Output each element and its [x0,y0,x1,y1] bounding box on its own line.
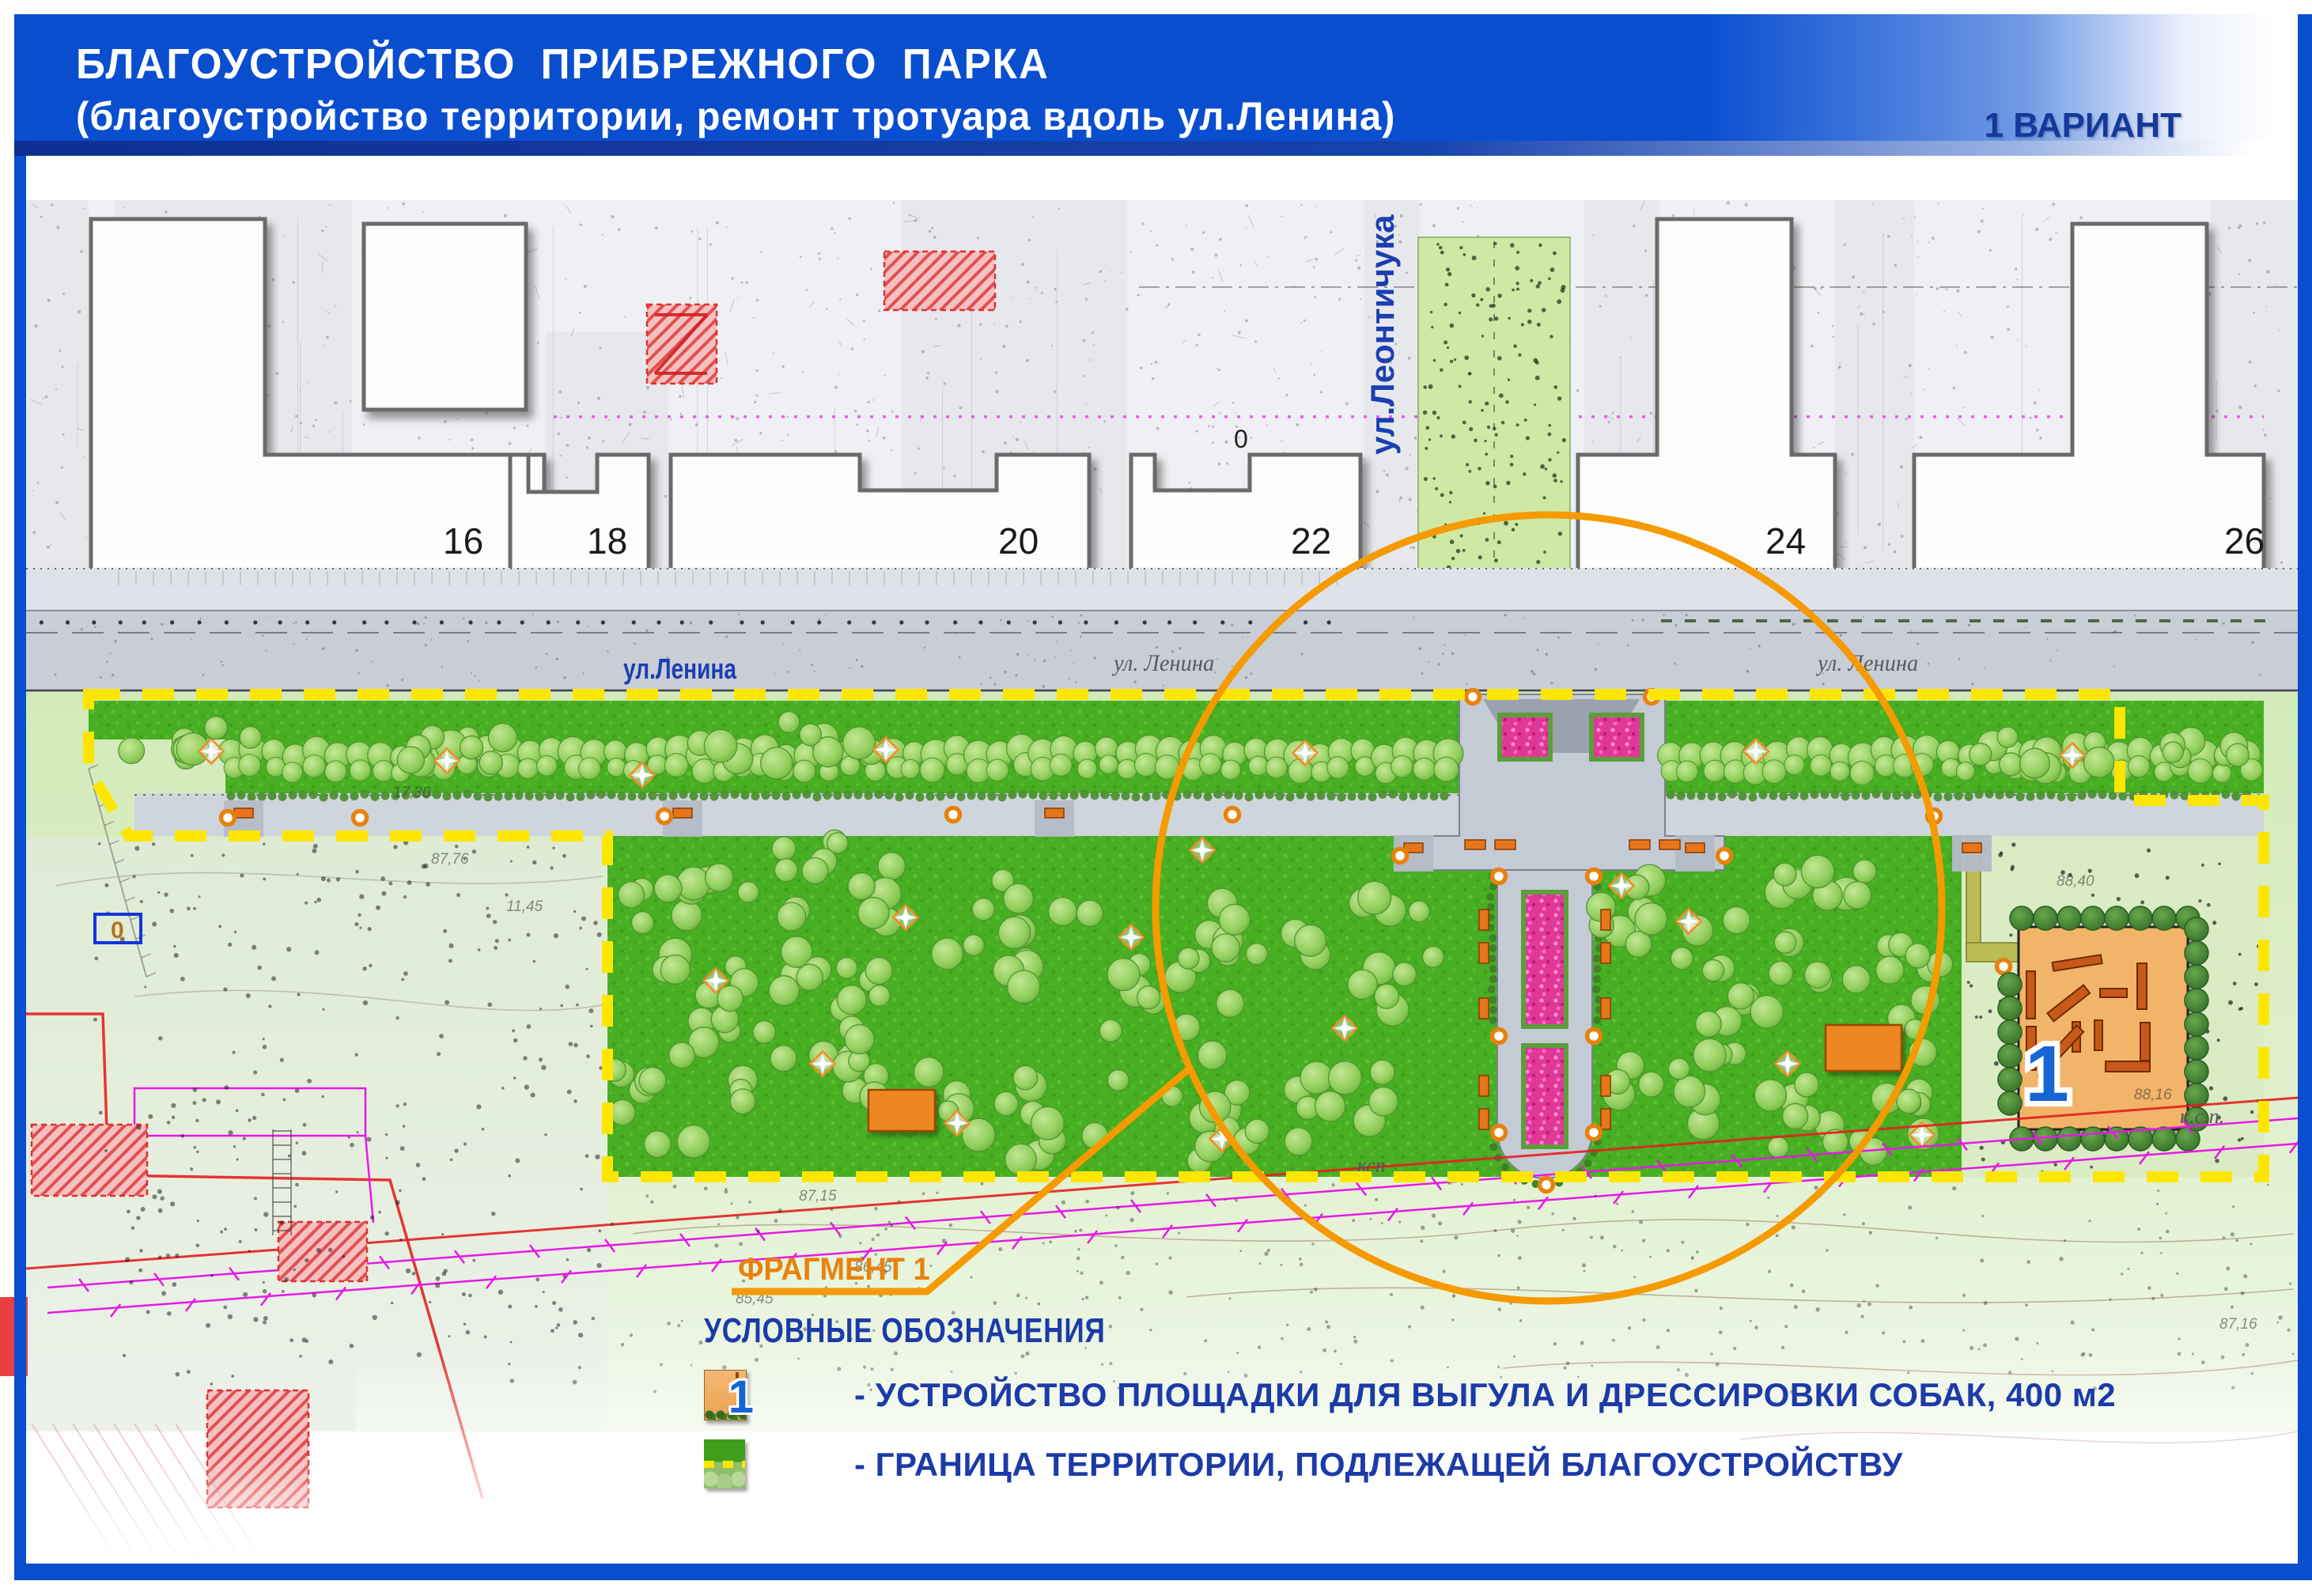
street-label-lenina-topo: ул. Ленина [1111,650,1214,676]
page-title: БЛАГОУСТРОЙСТВО ПРИБРЕЖНОГО ПАРКА [76,40,1050,89]
legend-item-dog-park: 1 - УСТРОЙСТВО ПЛОЩАДКИ ДЛЯ ВЫГУЛА И ДРЕ… [704,1370,1205,1420]
street-label-lenina: ул.Ленина [623,653,737,685]
frame-bottom-stripe [14,1564,2312,1580]
dog-park: 1 [1998,906,2208,1151]
frame-left-stripe [14,14,26,1580]
header: БЛАГОУСТРОЙСТВО ПРИБРЕЖНОГО ПАРКА (благо… [14,14,2298,141]
dog-park-icon-number: 1 [728,1371,754,1424]
topo-label-ksp: к.с.п. [2180,1105,2224,1128]
building-number: 24 [1765,520,1806,562]
frame-right-stripe [2298,14,2312,1580]
building-annex [364,224,526,410]
elevation-label: 87,15 [799,1188,837,1205]
legend-heading: УСЛОВНЫЕ ОБОЗНАЧЕНИЯ [704,1311,1106,1351]
legend-item-label: - УСТРОЙСТВО ПЛОЩАДКИ ДЛЯ ВЫГУЛА И ДРЕСС… [854,1376,2116,1414]
legend: УСЛОВНЫЕ ОБОЗНАЧЕНИЯ 1 - УСТРОЙСТВО ПЛОЩ… [704,1311,1205,1490]
elevation-label: 11,45 [506,898,543,915]
building-number: 20 [998,520,1039,562]
elevation-label: 87,16 [2219,1316,2257,1333]
legend-item-label: - ГРАНИЦА ТЕРРИТОРИИ, ПОДЛЕЖАЩЕЙ БЛАГОУС… [854,1446,1903,1484]
elevation-label: 88,16 [2134,1087,2172,1103]
building-number: 22 [1291,520,1331,562]
street-label-leontichuka: ул.Леонтичука [1364,214,1401,455]
elevation-label: 17,30 [393,785,431,801]
building-number: 16 [443,520,483,562]
elevation-label: 87,76 [431,851,469,868]
elevation-label: 88,40 [2057,873,2094,890]
topo-zero-box: 0 [111,917,124,944]
legend-item-boundary: - ГРАНИЦА ТЕРРИТОРИИ, ПОДЛЕЖАЩЕЙ БЛАГОУС… [704,1439,1205,1490]
leontichuka-boulevard [1418,237,1570,589]
fragment-label: ФРАГМЕНТ 1 [738,1252,930,1287]
dog-park-number: 1 [2025,1030,2069,1118]
page-subtitle: (благоустройство территории, ремонт трот… [76,93,1395,139]
header-divider-bar [14,141,2298,156]
topo-zero-label: 0 [1234,425,1248,453]
dog-park-icon: 1 [704,1370,747,1420]
variant-label: 1 ВАРИАНТ [1897,106,2181,146]
building-number: 26 [2224,520,2265,562]
building-number: 18 [587,520,627,562]
territory-boundary-icon [704,1439,745,1488]
